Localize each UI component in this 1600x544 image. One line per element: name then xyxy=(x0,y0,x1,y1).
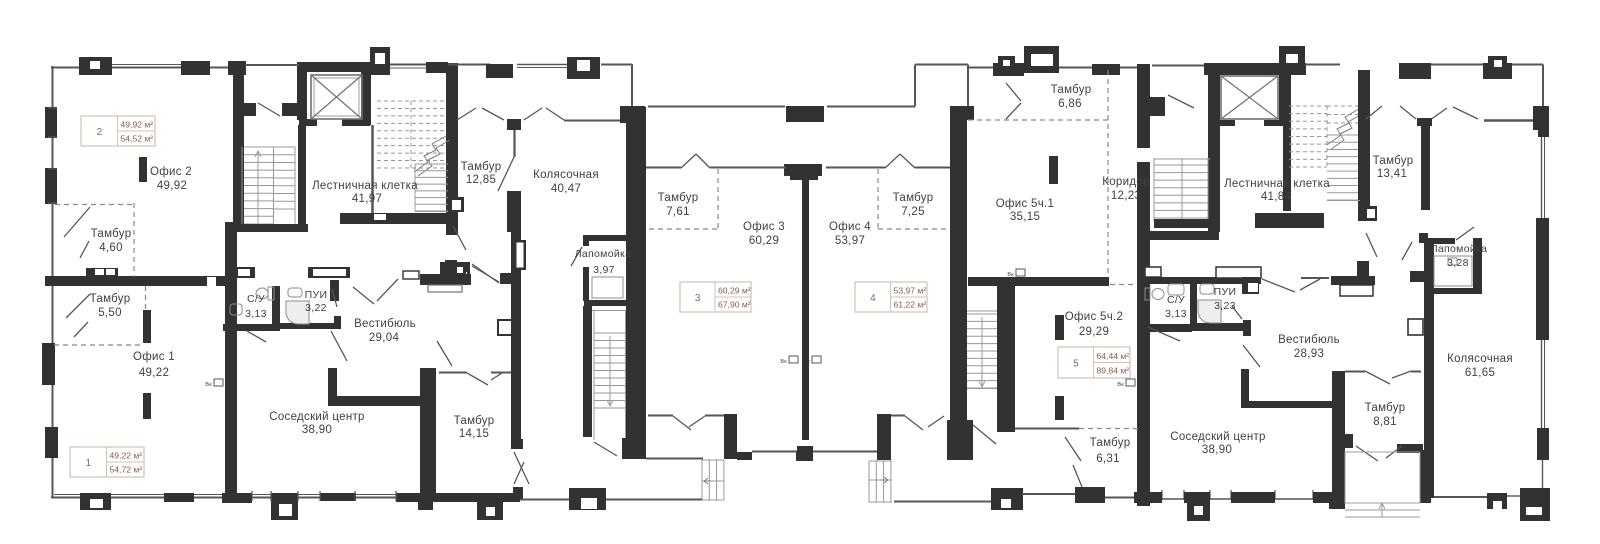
svg-text:41,84: 41,84 xyxy=(1261,191,1292,203)
svg-text:3,28: 3,28 xyxy=(1447,257,1469,269)
svg-text:С/У: С/У xyxy=(247,293,265,305)
svg-text:Лапомойка: Лапомойка xyxy=(575,248,632,260)
svg-text:28,93: 28,93 xyxy=(1294,348,1324,360)
svg-text:49,22 м²: 49,22 м² xyxy=(110,451,143,461)
svg-text:Офис 5ч.1: Офис 5ч.1 xyxy=(996,198,1054,210)
svg-text:6,31: 6,31 xyxy=(1096,453,1120,465)
svg-text:Офис 3: Офис 3 xyxy=(743,221,785,233)
svg-text:Лестничная клетка: Лестничная клетка xyxy=(312,180,418,192)
svg-text:29,29: 29,29 xyxy=(1079,326,1109,338)
svg-text:Вестибюль: Вестибюль xyxy=(354,318,416,330)
svg-text:60,29: 60,29 xyxy=(749,235,779,247)
svg-text:67,90 м²: 67,90 м² xyxy=(718,300,751,310)
svg-text:Тамбур: Тамбур xyxy=(1365,402,1406,414)
svg-text:61,22 м²: 61,22 м² xyxy=(894,300,927,310)
svg-text:12,85: 12,85 xyxy=(466,174,496,186)
svg-text:Офис 4: Офис 4 xyxy=(829,221,871,233)
svg-text:Офис 2: Офис 2 xyxy=(150,166,192,178)
svg-text:ПУИ: ПУИ xyxy=(305,289,328,301)
svg-text:53,97: 53,97 xyxy=(835,235,865,247)
svg-text:7,61: 7,61 xyxy=(666,206,690,218)
svg-text:Соседский центр: Соседский центр xyxy=(1170,431,1266,443)
svg-text:53,97 м²: 53,97 м² xyxy=(894,286,927,296)
svg-text:5: 5 xyxy=(1073,359,1079,370)
svg-text:3,13: 3,13 xyxy=(1165,308,1187,320)
svg-text:Тамбур: Тамбур xyxy=(1373,155,1414,167)
svg-text:54,72 м²: 54,72 м² xyxy=(110,465,143,475)
svg-text:Вк: Вк xyxy=(1117,382,1124,388)
svg-text:3: 3 xyxy=(695,293,701,304)
svg-text:Тамбур: Тамбур xyxy=(1090,437,1131,449)
svg-text:С/У: С/У xyxy=(1167,294,1185,306)
svg-text:Тамбур: Тамбур xyxy=(454,415,495,427)
svg-text:Соседский центр: Соседский центр xyxy=(269,411,365,423)
svg-text:12,23: 12,23 xyxy=(1111,190,1141,202)
svg-text:49,92 м²: 49,92 м² xyxy=(121,120,154,130)
svg-text:Вестибюль: Вестибюль xyxy=(1278,334,1340,346)
svg-text:35,15: 35,15 xyxy=(1010,211,1040,223)
svg-text:64,44 м²: 64,44 м² xyxy=(1097,351,1130,361)
svg-text:3,97: 3,97 xyxy=(593,264,615,276)
svg-text:Офис 5ч.2: Офис 5ч.2 xyxy=(1065,311,1123,323)
svg-text:Тамбур: Тамбур xyxy=(1051,84,1092,96)
svg-text:29,04: 29,04 xyxy=(369,332,400,344)
svg-text:3,13: 3,13 xyxy=(245,308,267,320)
svg-text:14,15: 14,15 xyxy=(459,428,489,440)
svg-text:Тамбур: Тамбур xyxy=(90,293,131,305)
svg-text:Лапомойка: Лапомойка xyxy=(1431,243,1488,255)
svg-text:13,41: 13,41 xyxy=(1377,168,1407,180)
svg-text:49,22: 49,22 xyxy=(139,367,169,379)
svg-text:Лестничная клетка: Лестничная клетка xyxy=(1224,178,1330,190)
svg-text:49,92: 49,92 xyxy=(157,180,187,192)
svg-text:3,23: 3,23 xyxy=(1214,300,1236,312)
svg-text:Колясочная: Колясочная xyxy=(1447,353,1513,365)
svg-text:Вк: Вк xyxy=(780,359,787,365)
svg-text:ПУИ: ПУИ xyxy=(1214,286,1237,298)
svg-text:4,60: 4,60 xyxy=(99,242,123,254)
svg-text:Тамбур: Тамбур xyxy=(461,161,502,173)
svg-text:Тамбур: Тамбур xyxy=(893,192,934,204)
svg-text:2: 2 xyxy=(97,127,103,138)
svg-text:54,52 м²: 54,52 м² xyxy=(121,134,154,144)
svg-text:Коридор: Коридор xyxy=(1102,176,1150,188)
svg-text:Тамбур: Тамбур xyxy=(658,192,699,204)
svg-text:Вк: Вк xyxy=(205,382,212,388)
svg-text:3,22: 3,22 xyxy=(305,302,327,314)
svg-text:7,25: 7,25 xyxy=(901,206,925,218)
svg-text:Колясочная: Колясочная xyxy=(533,169,599,181)
svg-text:Офис 1: Офис 1 xyxy=(133,351,175,363)
svg-text:6,86: 6,86 xyxy=(1058,98,1082,110)
svg-text:38,90: 38,90 xyxy=(1202,444,1232,456)
svg-text:38,90: 38,90 xyxy=(302,424,332,436)
svg-text:60,29 м²: 60,29 м² xyxy=(718,286,751,296)
svg-text:5,50: 5,50 xyxy=(98,307,122,319)
svg-text:4: 4 xyxy=(870,293,876,304)
svg-text:40,47: 40,47 xyxy=(551,183,581,195)
svg-text:41,97: 41,97 xyxy=(352,193,382,205)
svg-text:1: 1 xyxy=(86,458,92,469)
svg-text:61,65: 61,65 xyxy=(1465,367,1495,379)
svg-text:8,81: 8,81 xyxy=(1373,416,1397,428)
svg-text:89,84 м²: 89,84 м² xyxy=(1097,366,1130,376)
svg-text:Тамбур: Тамбур xyxy=(91,228,132,240)
